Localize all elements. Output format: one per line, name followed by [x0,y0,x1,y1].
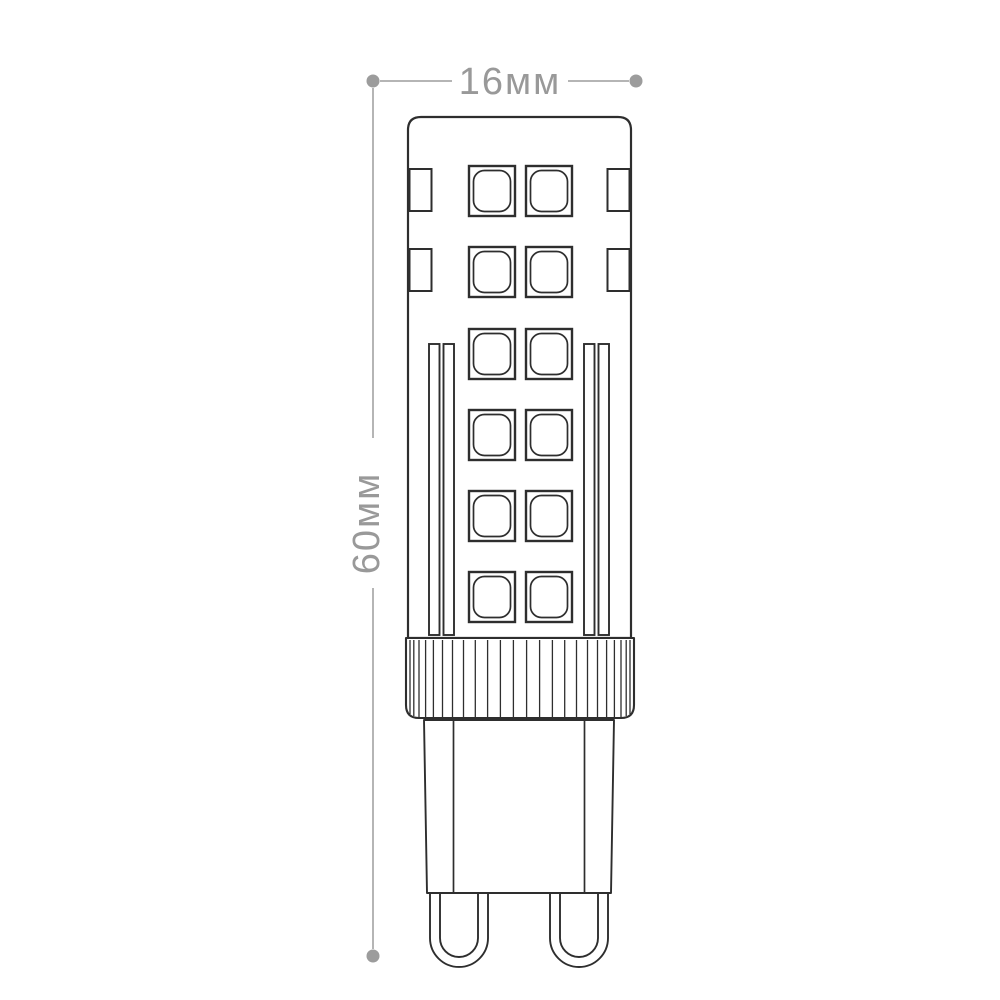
pin-inner-left [440,893,478,957]
lens-ridge-strip [584,344,595,635]
dimension-endpoint-dot [367,950,380,963]
led-chip [526,247,572,297]
bulb-technical-drawing: 16мм 60мм [0,0,1000,1000]
led-chip [526,572,572,622]
lamp-body [408,117,631,638]
led-chip [469,491,515,541]
ceramic-base-outline [424,720,614,893]
lens-ridge-strip [599,344,610,635]
g9-pins [430,893,608,967]
height-dimension-label: 60мм [346,472,388,575]
led-chip [469,329,515,379]
ceramic-base [424,720,614,893]
lens-ridge-strip [429,344,440,635]
dimension-endpoint-dot [630,75,643,88]
width-dimension-label: 16мм [459,61,562,103]
led-chip [469,247,515,297]
led-chip [526,329,572,379]
led-chip [526,166,572,216]
side-led-chip [608,249,630,291]
led-chip [469,410,515,460]
heatsink-collar-outline [406,638,634,718]
side-led-chip [608,169,630,211]
diagram-canvas: 16мм 60мм [0,0,1000,1000]
side-led-chip [410,249,432,291]
lens-ridge-strip [444,344,455,635]
side-led-chip [410,169,432,211]
dimension-endpoint-dot [367,75,380,88]
pin-inner-right [560,893,598,957]
led-chip [469,166,515,216]
led-chip [469,572,515,622]
heatsink-collar [406,638,634,718]
led-chip [526,491,572,541]
height-dimension: 60мм [346,88,388,963]
lamp-body-outline [408,117,631,638]
width-dimension: 16мм [367,61,643,103]
led-chip [526,410,572,460]
